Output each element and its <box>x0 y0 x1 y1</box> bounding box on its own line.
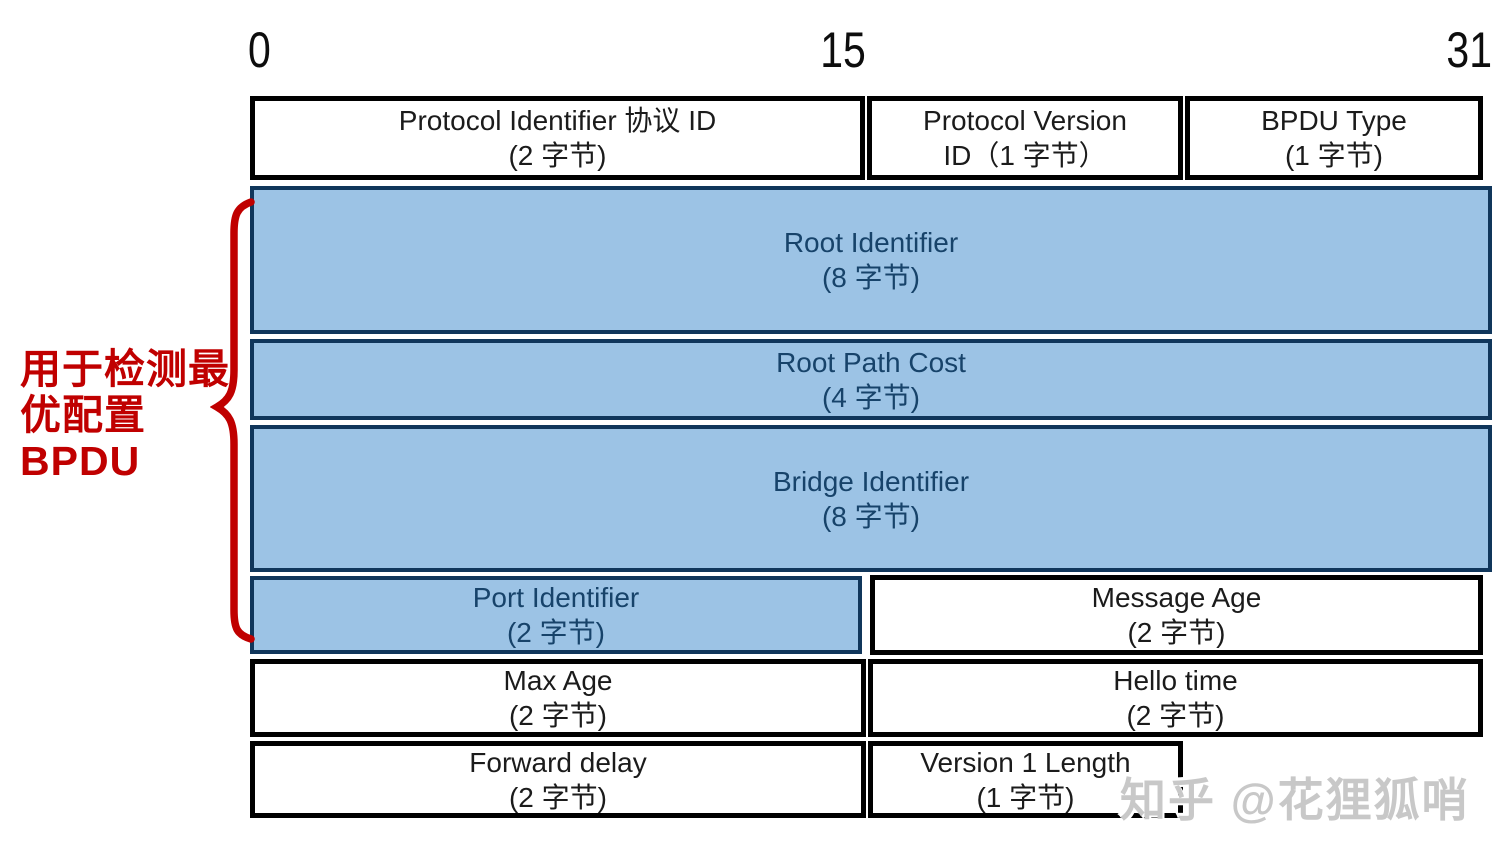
field-label: Protocol Identifier 协议 ID <box>399 103 716 138</box>
bit-label-31: 31 <box>1446 24 1492 76</box>
field-label: Hello time <box>1113 663 1237 698</box>
bpdu-format-diagram: 0 15 31 Protocol Identifier 协议 ID (2 字节)… <box>0 0 1499 864</box>
field-size-label: (8 字节) <box>822 499 920 534</box>
field-port-identifier: Port Identifier (2 字节) <box>250 576 862 654</box>
field-label: Root Path Cost <box>776 345 966 380</box>
field-size-label: (2 字节) <box>1127 615 1225 650</box>
field-message-age: Message Age (2 字节) <box>870 575 1483 655</box>
field-size-label: (2 字节) <box>508 138 606 173</box>
field-size-label: ID（1 字节） <box>943 138 1106 173</box>
field-label: BPDU Type <box>1261 103 1407 138</box>
field-bridge-identifier: Bridge Identifier (8 字节) <box>250 425 1492 572</box>
field-size-label: (2 字节) <box>1126 698 1224 733</box>
bit-label-15: 15 <box>820 24 866 76</box>
field-protocol-identifier: Protocol Identifier 协议 ID (2 字节) <box>250 96 865 180</box>
field-bpdu-type: BPDU Type (1 字节) <box>1185 96 1483 180</box>
field-max-age: Max Age (2 字节) <box>250 659 866 737</box>
field-size-label: (8 字节) <box>822 260 920 295</box>
field-label: Max Age <box>504 663 613 698</box>
annotation-text: 用于检测最 优配置 BPDU <box>20 346 230 484</box>
bit-label-0: 0 <box>248 24 271 76</box>
field-label: Protocol Version <box>923 103 1127 138</box>
field-size-label: (2 字节) <box>509 698 607 733</box>
field-label: Message Age <box>1092 580 1262 615</box>
field-hello-time: Hello time (2 字节) <box>868 659 1483 737</box>
field-root-identifier: Root Identifier (8 字节) <box>250 186 1492 334</box>
field-label: Root Identifier <box>784 225 958 260</box>
field-size-label: (4 字节) <box>822 380 920 415</box>
field-label: Version 1 Length <box>920 745 1130 780</box>
field-label: Port Identifier <box>473 580 640 615</box>
field-size-label: (2 字节) <box>507 615 605 650</box>
field-root-path-cost: Root Path Cost (4 字节) <box>250 339 1492 420</box>
field-size-label: (1 字节) <box>1285 138 1383 173</box>
field-label: Forward delay <box>469 745 646 780</box>
field-forward-delay: Forward delay (2 字节) <box>250 741 866 818</box>
field-size-label: (2 字节) <box>509 780 607 815</box>
field-size-label: (1 字节) <box>976 780 1074 815</box>
field-label: Bridge Identifier <box>773 464 969 499</box>
watermark-text: 知乎 @花狸狐哨 <box>1120 764 1470 830</box>
field-protocol-version-id: Protocol Version ID（1 字节） <box>867 96 1183 180</box>
